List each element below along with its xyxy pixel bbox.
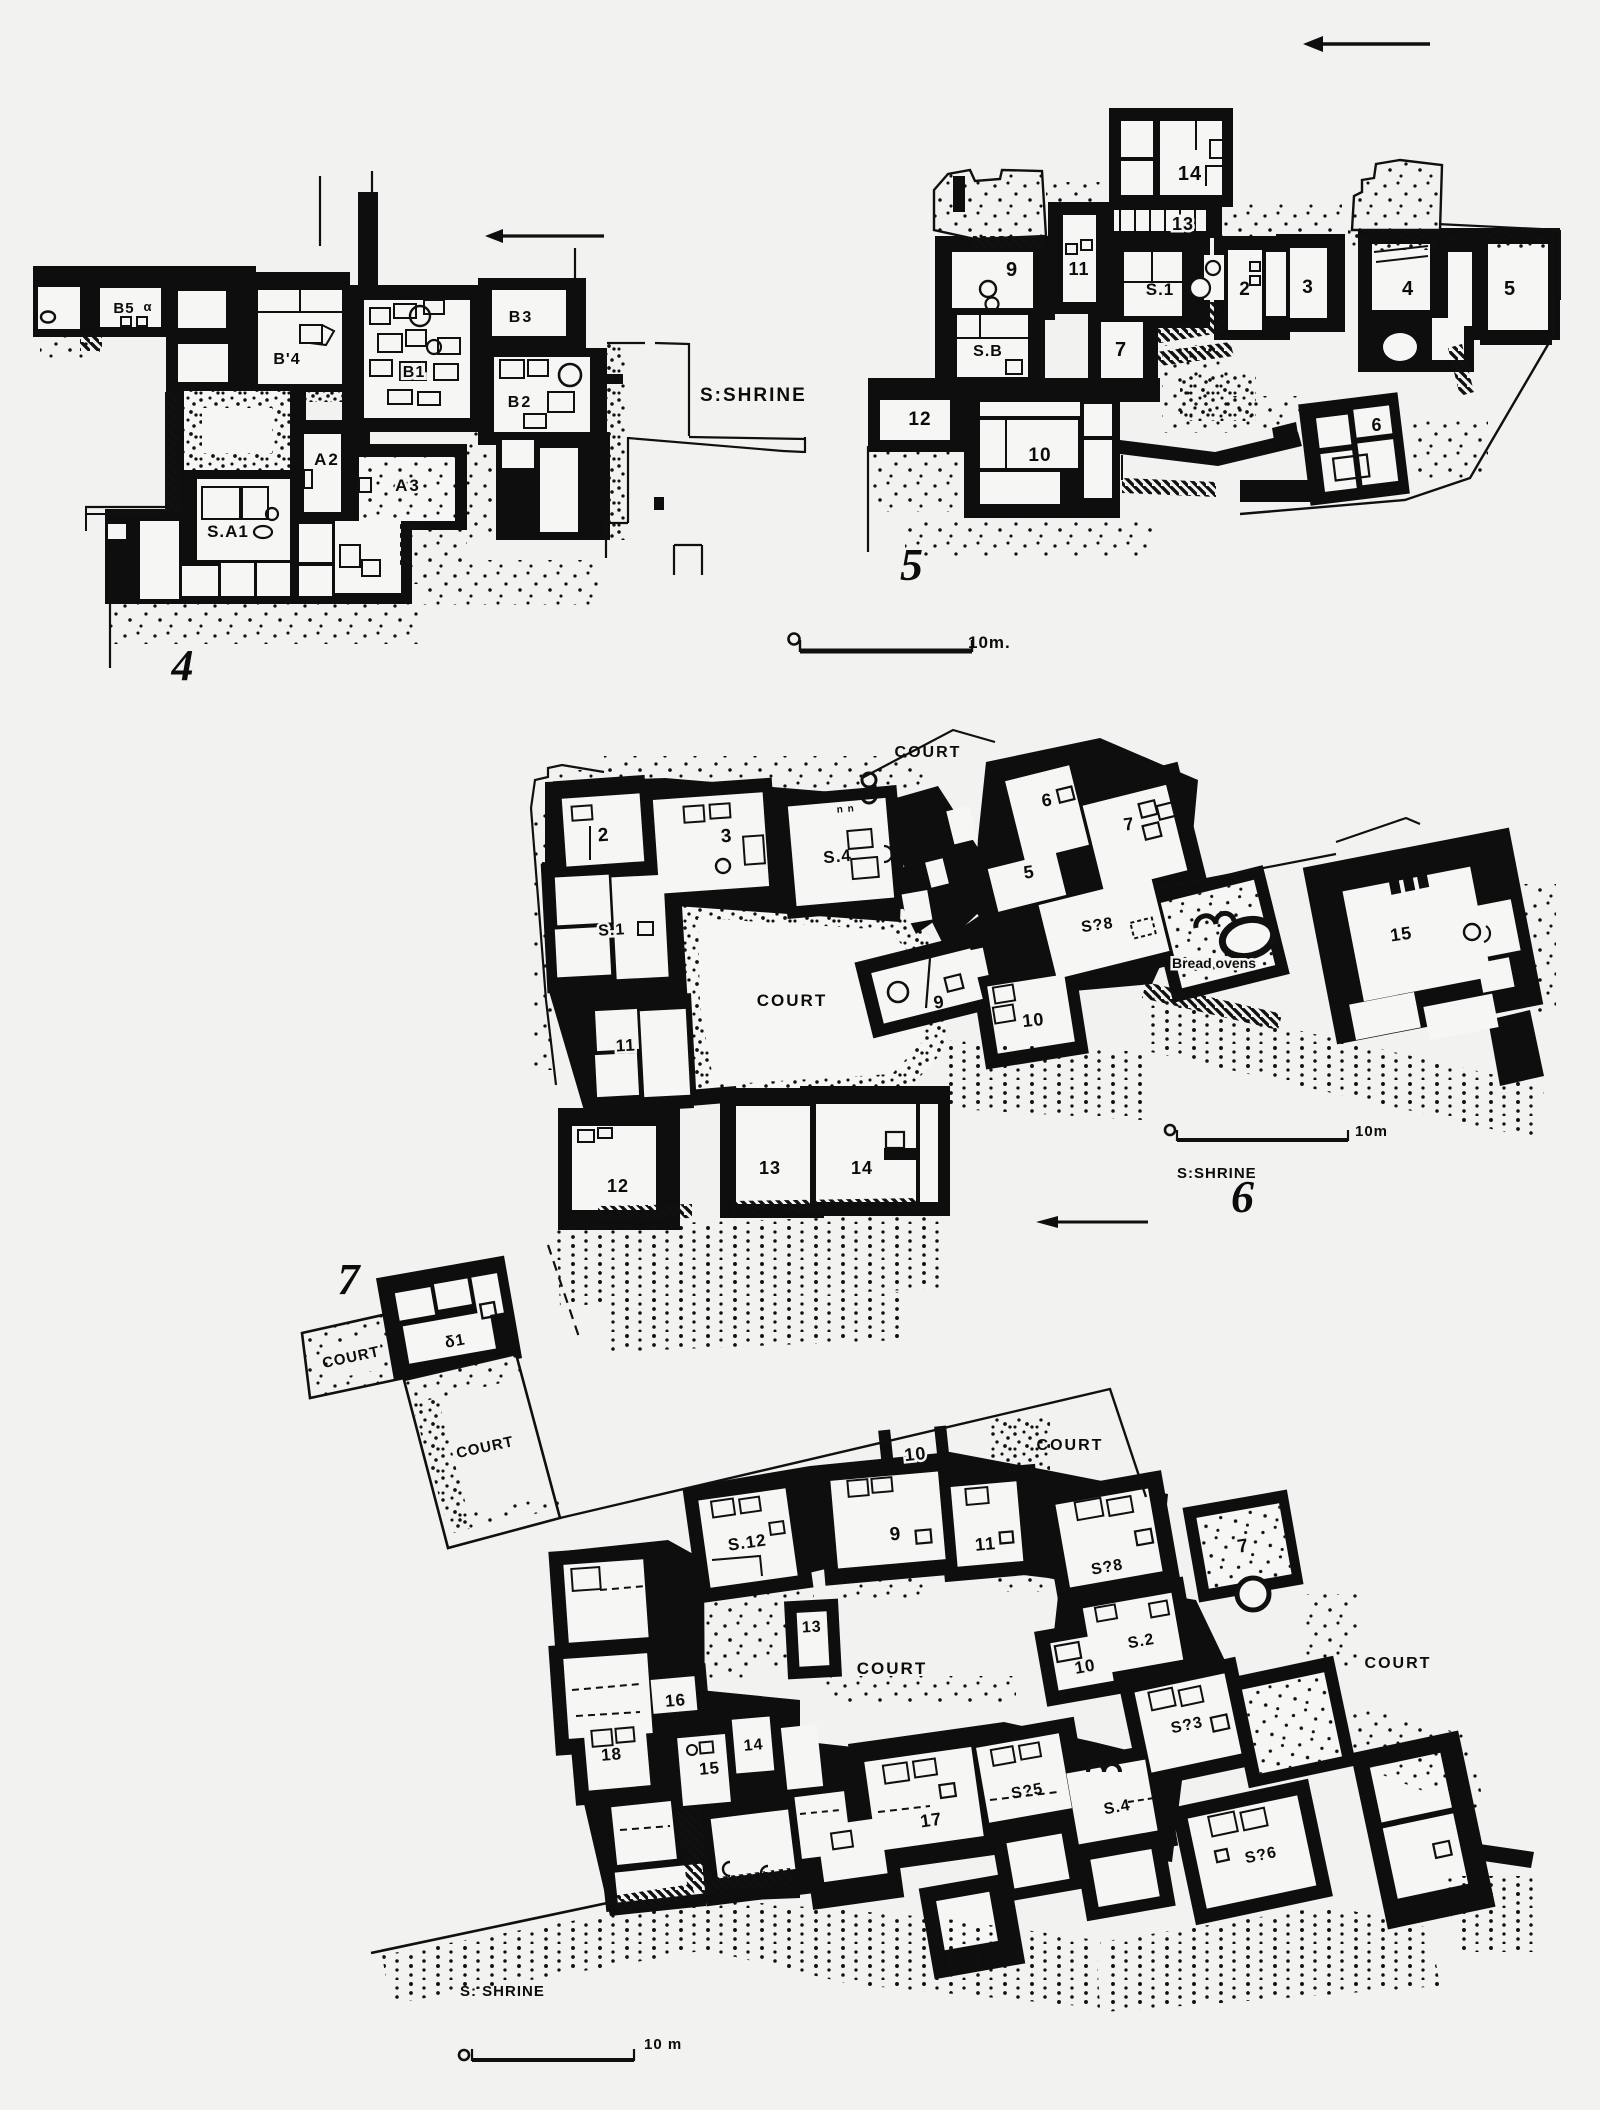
svg-text:7: 7 [338,1255,362,1304]
svg-text:15: 15 [1389,923,1414,946]
svg-text:12: 12 [607,1176,629,1196]
svg-text:A2: A2 [314,450,340,469]
svg-text:n n: n n [836,803,855,816]
svg-text:10 m: 10 m [644,2036,682,2053]
svg-text:14: 14 [1178,163,1202,185]
svg-text:COURT: COURT [895,744,962,761]
svg-text:10m.: 10m. [968,633,1011,652]
svg-text:α: α [144,299,153,314]
svg-text:3: 3 [720,826,733,848]
svg-text:5: 5 [900,539,924,590]
svg-text:10: 10 [1028,445,1051,466]
svg-text:COURT: COURT [1365,1655,1432,1672]
svg-text:B2: B2 [508,394,532,411]
svg-text:14: 14 [743,1736,764,1755]
svg-text:5: 5 [1504,278,1516,300]
svg-text:S.B: S.B [973,343,1003,360]
svg-text:S: SHRINE: S: SHRINE [460,1983,545,2000]
svg-text:9: 9 [1006,259,1018,281]
svg-text:4: 4 [171,641,195,690]
svg-text:COURT: COURT [757,991,827,1010]
svg-text:S.1: S.1 [598,921,626,939]
svg-text:7: 7 [1115,339,1127,361]
svg-text:11: 11 [1068,259,1089,279]
svg-text:A3: A3 [395,476,421,495]
svg-text:B'4: B'4 [273,351,300,368]
svg-text:12: 12 [908,409,931,430]
svg-text:13: 13 [1172,214,1194,234]
svg-text:11: 11 [974,1533,997,1555]
svg-text:16: 16 [664,1690,686,1711]
svg-text:10: 10 [1021,1009,1045,1031]
svg-text:S.A1: S.A1 [207,522,249,541]
svg-text:B5: B5 [113,300,134,317]
svg-text:δ1: δ1 [444,1331,467,1351]
svg-text:9: 9 [889,1524,902,1546]
svg-text:17: 17 [919,1809,944,1832]
svg-text:Bread ovens: Bread ovens [1172,955,1256,971]
svg-text:B1: B1 [403,364,425,381]
svg-text:2: 2 [597,825,610,847]
svg-text:13: 13 [801,1618,822,1636]
svg-text:6: 6 [1231,1171,1255,1222]
svg-text:3: 3 [1302,277,1314,298]
svg-text:S:SHRINE: S:SHRINE [700,385,807,406]
svg-text:10: 10 [903,1443,927,1465]
svg-text:15: 15 [698,1758,720,1779]
svg-text:14: 14 [851,1158,873,1178]
svg-text:18: 18 [600,1744,622,1765]
svg-text:COURT: COURT [857,1659,927,1678]
svg-text:6: 6 [1371,415,1382,435]
svg-text:10m: 10m [1355,1123,1388,1140]
svg-text:B3: B3 [509,309,533,326]
svg-text:4: 4 [1402,278,1414,300]
svg-text:13: 13 [759,1158,781,1178]
svg-text:11: 11 [615,1035,636,1055]
